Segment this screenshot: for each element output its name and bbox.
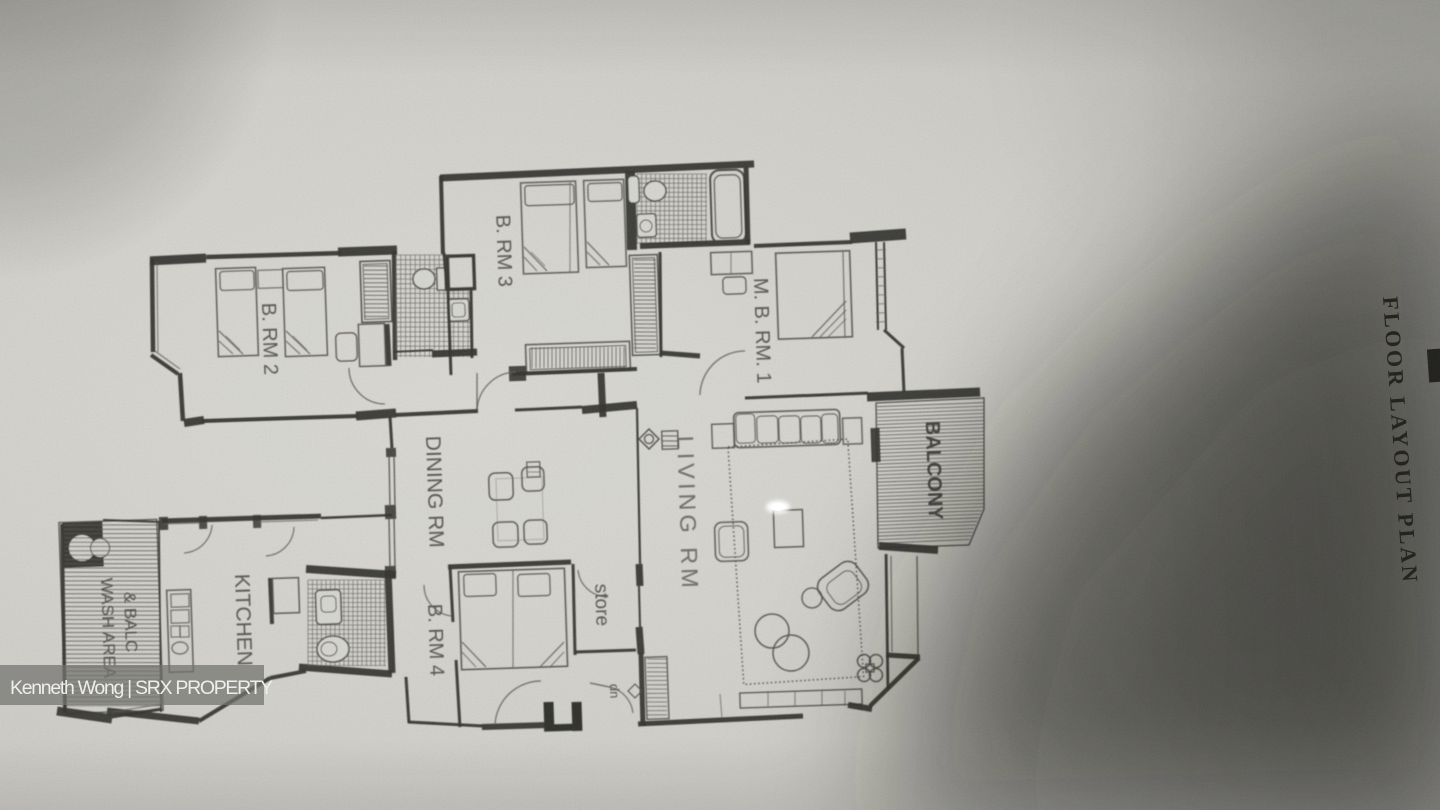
svg-text:Kenneth Wong | SRX PROPERTY: Kenneth Wong | SRX PROPERTY	[10, 677, 273, 699]
